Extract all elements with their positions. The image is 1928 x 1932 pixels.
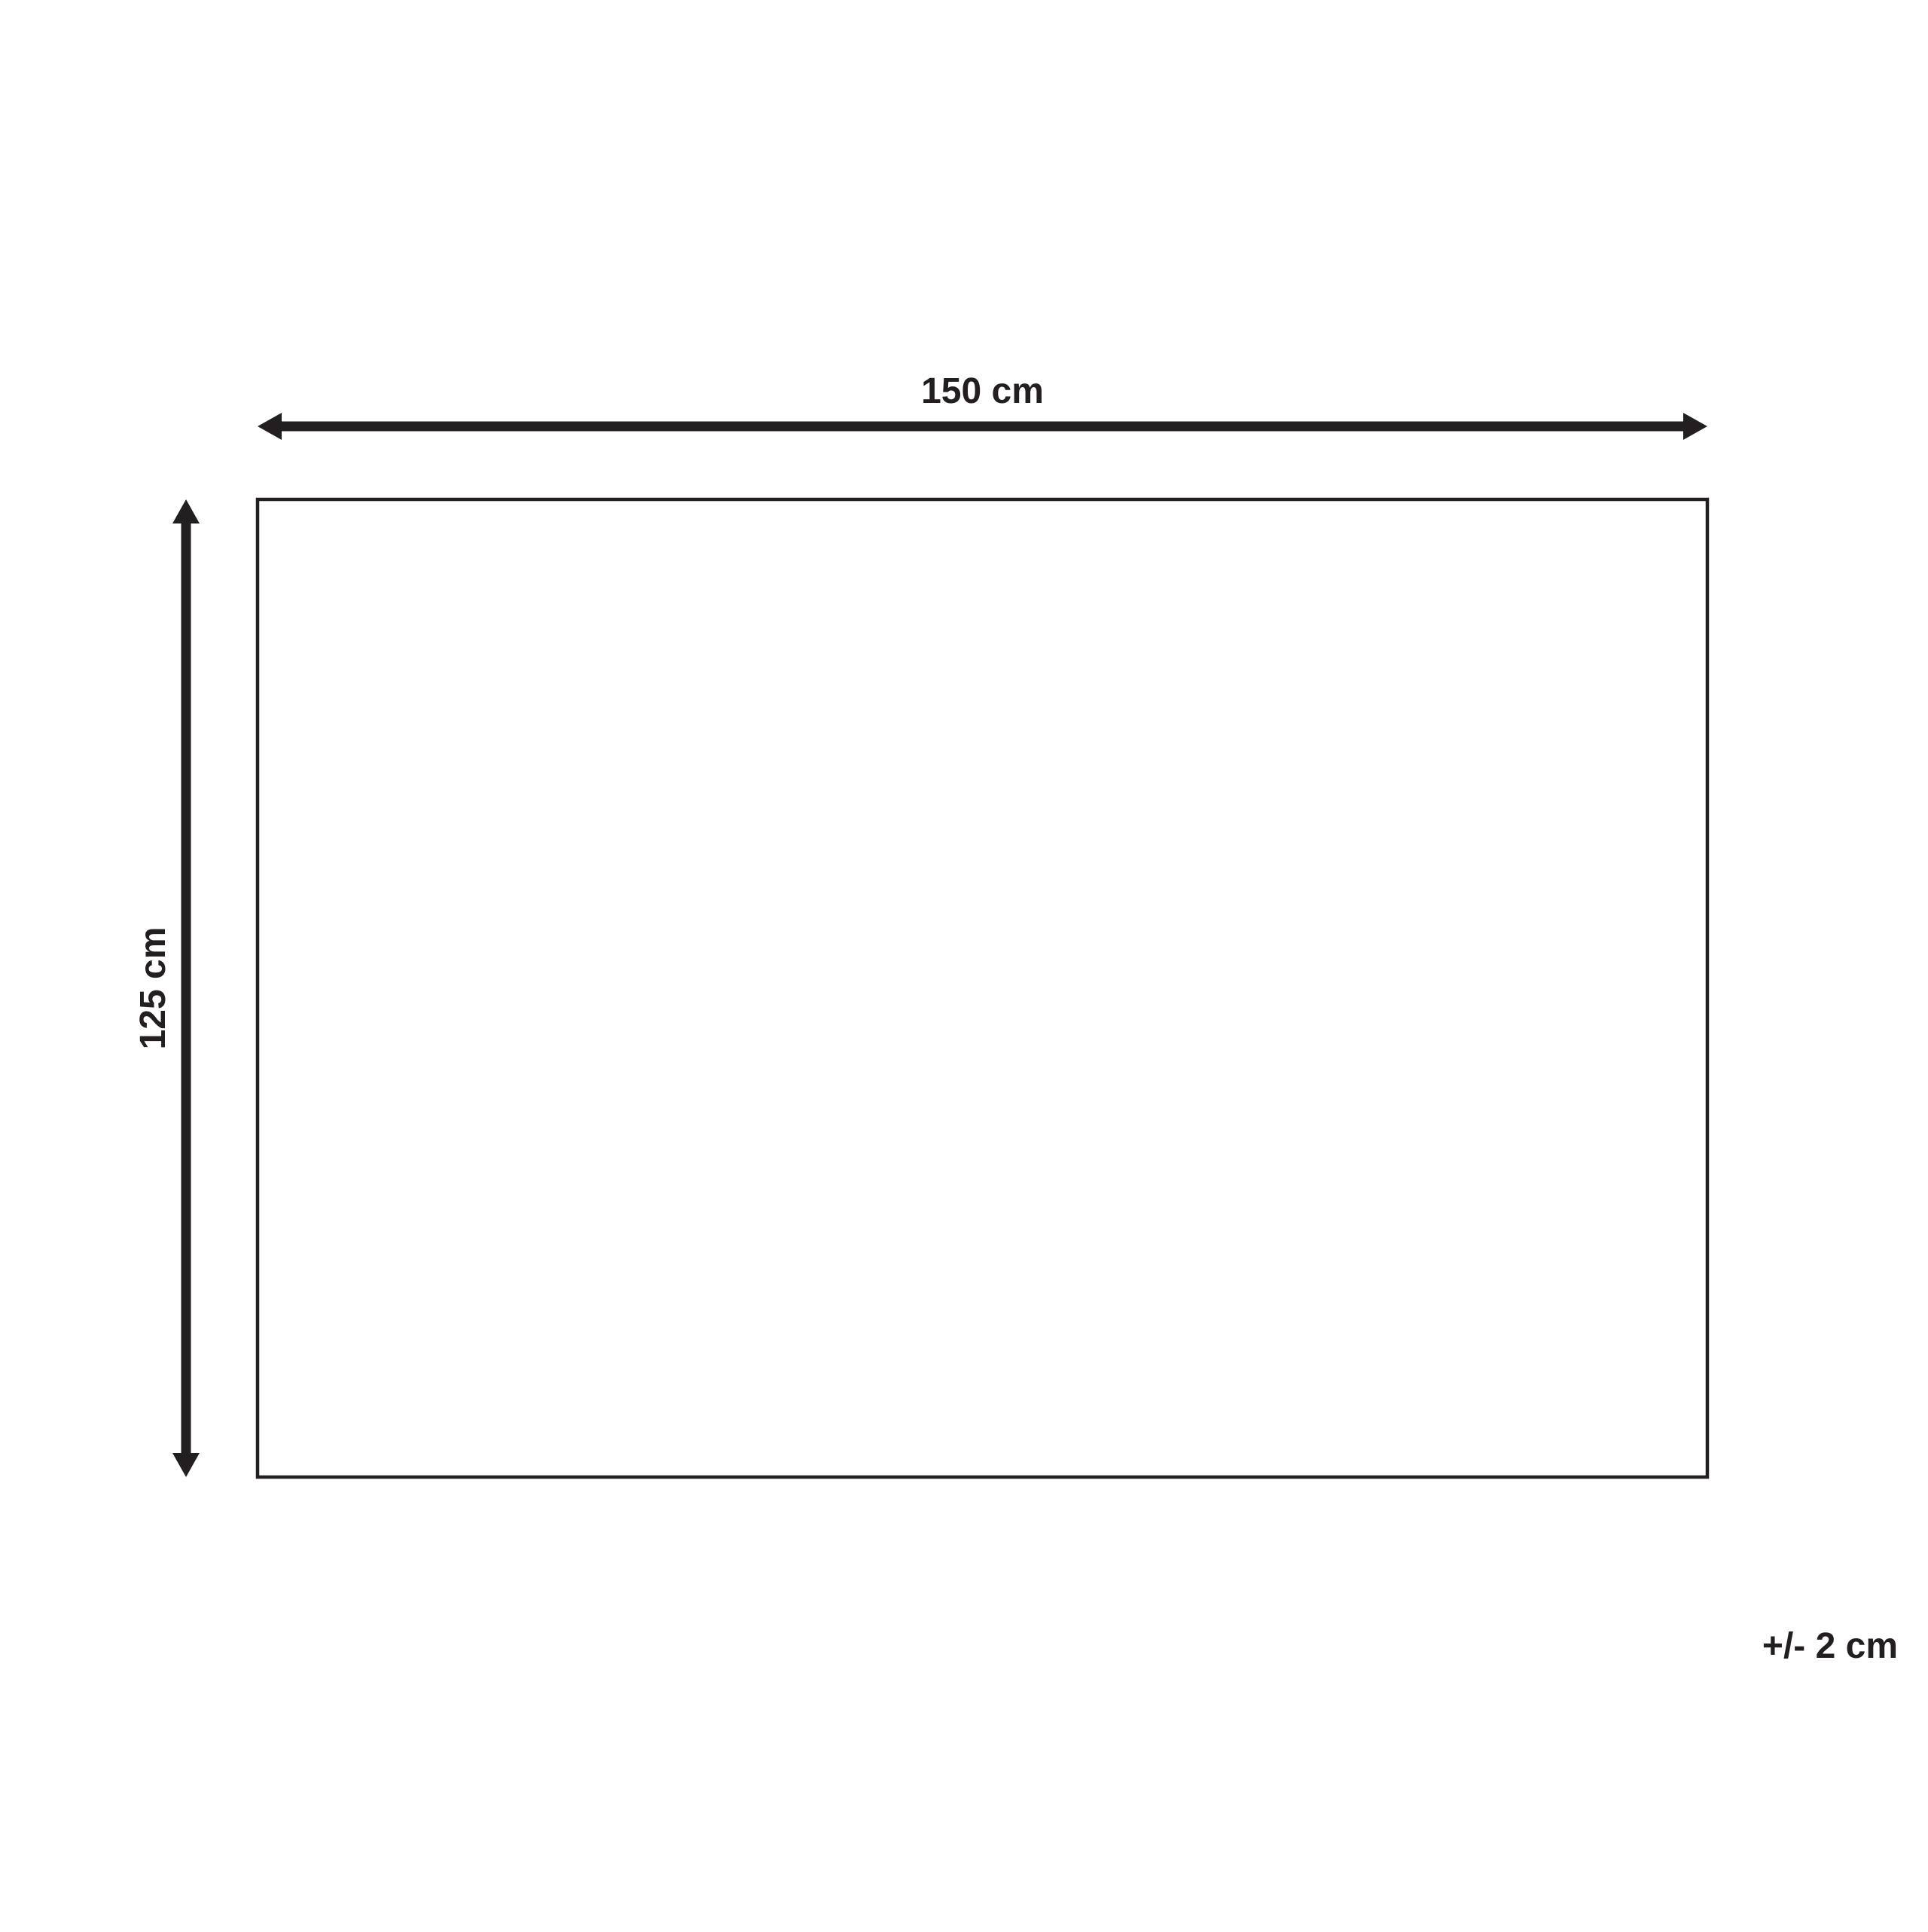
width-dimension-arrow	[258, 413, 1707, 440]
width-dimension-label: 150 cm	[258, 372, 1707, 411]
dimension-diagram-drawing	[0, 0, 1928, 1928]
height-dimension-arrow	[172, 499, 200, 1477]
product-outline-rectangle	[258, 499, 1707, 1477]
arrowhead-left-icon	[258, 413, 282, 440]
tolerance-label: +/- 2 cm	[1762, 1627, 1898, 1666]
arrowhead-right-icon	[1683, 413, 1707, 440]
dimension-diagram: 150 cm 125 cm +/- 2 cm	[0, 0, 1928, 1928]
height-dimension-label: 125 cm	[134, 927, 173, 1050]
arrowhead-down-icon	[172, 1453, 200, 1477]
arrowhead-up-icon	[172, 499, 200, 523]
